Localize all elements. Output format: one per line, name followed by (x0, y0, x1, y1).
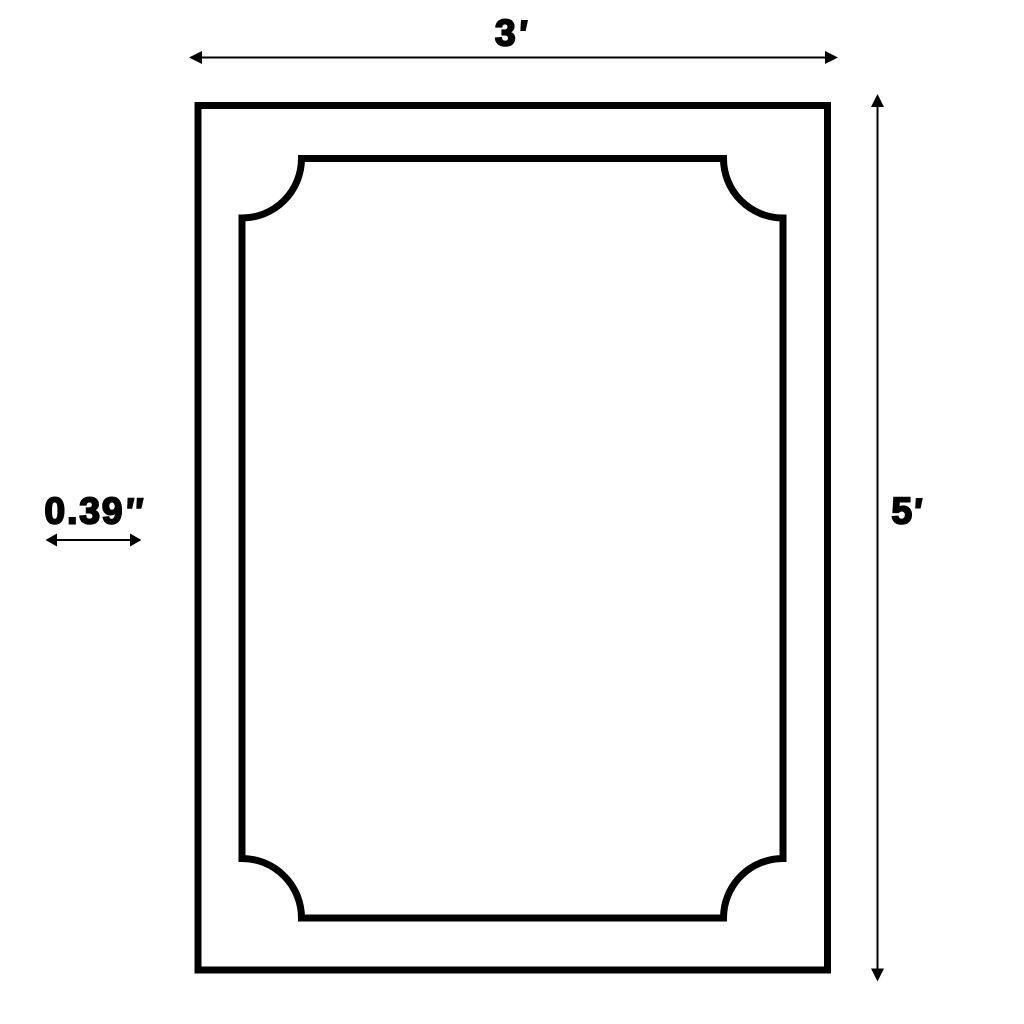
svg-text:0.39: 0.39 (45, 491, 125, 532)
svg-text:3: 3 (495, 13, 516, 54)
svg-text:5: 5 (892, 491, 913, 532)
